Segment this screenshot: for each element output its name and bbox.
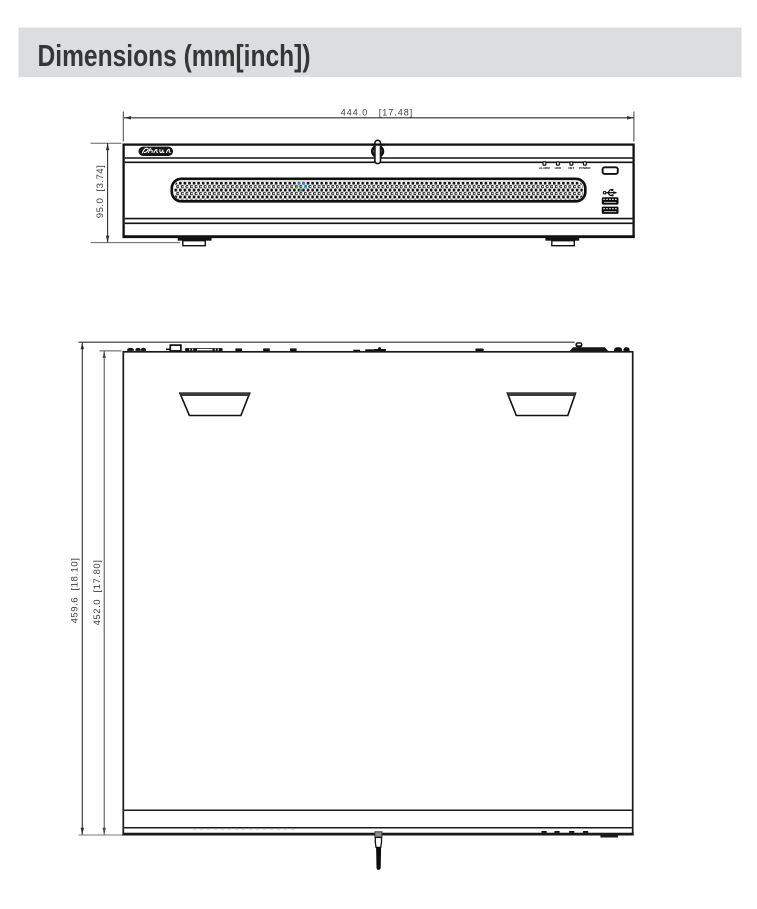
svg-text:95.0 [3.74]: 95.0 [3.74]	[95, 165, 106, 218]
svg-text:HDD: HDD	[555, 166, 562, 170]
svg-text:NET: NET	[568, 166, 574, 170]
svg-text:459.6 [18.10]: 459.6 [18.10]	[70, 558, 81, 624]
svg-text:452.0 [17.80]: 452.0 [17.80]	[92, 560, 103, 626]
svg-text:Dimensions (mm[inch]): Dimensions (mm[inch])	[38, 38, 311, 73]
svg-text:444.0 [17.48]: 444.0 [17.48]	[341, 108, 414, 118]
svg-text:ALARM: ALARM	[539, 166, 550, 170]
svg-text:POWER: POWER	[579, 166, 591, 170]
